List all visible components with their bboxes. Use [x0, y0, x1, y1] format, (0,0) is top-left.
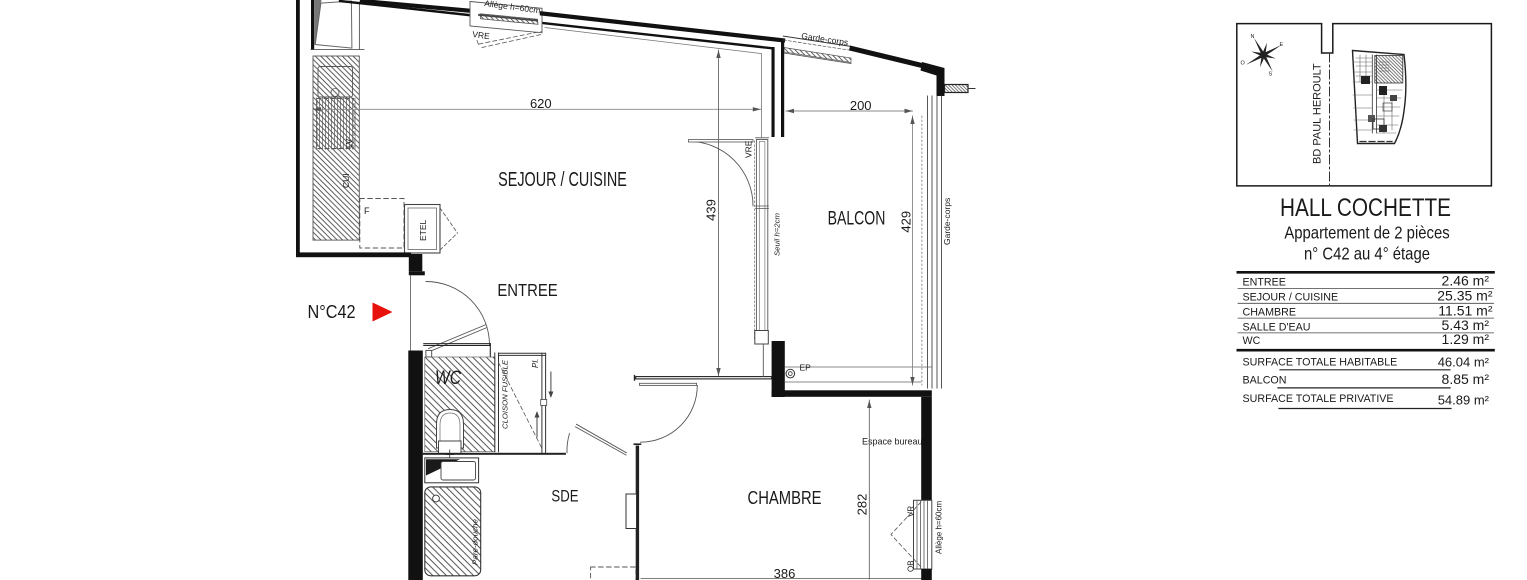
svg-text:11.51 m²: 11.51 m²	[1438, 302, 1493, 318]
svg-text:E: E	[1280, 42, 1284, 48]
svg-text:200: 200	[850, 98, 872, 113]
svg-text:BD PAUL HEROULT: BD PAUL HEROULT	[1312, 63, 1324, 164]
svg-text:SURFACE TOTALE PRIVATIVE: SURFACE TOTALE PRIVATIVE	[1243, 393, 1394, 405]
svg-text:Appartement de 2 pièces: Appartement de 2 pièces	[1284, 223, 1449, 242]
svg-text:VR: VR	[907, 506, 916, 517]
svg-text:WC: WC	[1243, 335, 1261, 347]
svg-text:SEJOUR / CUISINE: SEJOUR / CUISINE	[1243, 292, 1339, 304]
svg-text:282: 282	[855, 494, 870, 516]
svg-text:ENTREE: ENTREE	[497, 281, 557, 300]
svg-text:2.46 m²: 2.46 m²	[1442, 272, 1490, 288]
svg-text:N: N	[1251, 34, 1255, 40]
svg-text:CUI: CUI	[341, 173, 351, 188]
svg-text:Garde-corps: Garde-corps	[942, 198, 952, 245]
svg-text:OB: OB	[907, 560, 916, 572]
svg-text:54.89 m²: 54.89 m²	[1438, 393, 1490, 408]
svg-text:SDE: SDE	[551, 487, 578, 506]
svg-text:Seuil h=2cm: Seuil h=2cm	[773, 213, 782, 256]
svg-text:620: 620	[530, 96, 552, 111]
svg-text:SALLE D'EAU: SALLE D'EAU	[1243, 321, 1311, 333]
svg-text:HALL COCHETTE: HALL COCHETTE	[1280, 193, 1451, 221]
svg-text:386: 386	[774, 566, 796, 580]
svg-text:BALCON: BALCON	[1243, 375, 1287, 387]
svg-text:439: 439	[704, 199, 719, 221]
svg-text:429: 429	[899, 211, 914, 233]
svg-text:Pare-douche: Pare-douche	[471, 519, 480, 565]
svg-text:1.29 m²: 1.29 m²	[1442, 331, 1490, 347]
svg-text:WC: WC	[435, 366, 461, 388]
svg-text:8.85 m²: 8.85 m²	[1442, 371, 1490, 387]
svg-text:25.35 m²: 25.35 m²	[1437, 287, 1493, 303]
svg-text:SEJOUR / CUISINE: SEJOUR / CUISINE	[498, 168, 627, 191]
svg-text:EP: EP	[800, 363, 812, 373]
svg-text:46.04 m²: 46.04 m²	[1438, 355, 1490, 370]
svg-text:LV: LV	[345, 138, 354, 148]
svg-text:Espace bureau: Espace bureau	[862, 437, 923, 447]
svg-text:ENTREE: ENTREE	[1243, 277, 1286, 289]
svg-text:CHAMBRE: CHAMBRE	[747, 487, 821, 508]
svg-text:F: F	[364, 206, 370, 216]
svg-text:Pl.: Pl.	[531, 359, 540, 368]
svg-text:n° C42 au 4° étage: n° C42 au 4° étage	[1304, 244, 1430, 263]
svg-text:O: O	[1241, 61, 1246, 67]
svg-text:S: S	[1269, 72, 1273, 78]
svg-text:SURFACE TOTALE HABITABLE: SURFACE TOTALE HABITABLE	[1243, 357, 1398, 369]
svg-text:CHAMBRE: CHAMBRE	[1243, 307, 1296, 319]
svg-text:Allège h=60cm: Allège h=60cm	[935, 501, 944, 554]
svg-text:VRE: VRE	[744, 140, 754, 158]
svg-text:ETEL: ETEL	[418, 219, 428, 241]
svg-text:BALCON: BALCON	[828, 207, 886, 229]
svg-text:N°C42: N°C42	[307, 301, 355, 322]
